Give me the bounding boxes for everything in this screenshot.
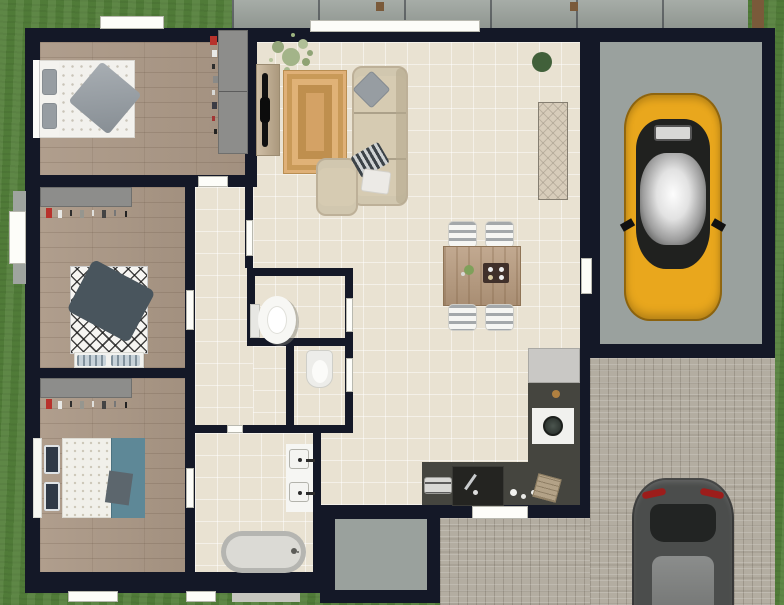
bidet-bowl bbox=[312, 360, 328, 383]
car-sunroof bbox=[654, 125, 692, 141]
car-roof bbox=[640, 153, 706, 245]
dining-chair[interactable] bbox=[485, 221, 514, 248]
vanity[interactable] bbox=[286, 444, 313, 512]
toilet-seat bbox=[267, 306, 287, 334]
car-rear-window bbox=[650, 504, 716, 542]
yellow-car[interactable] bbox=[624, 93, 722, 321]
bidet[interactable] bbox=[306, 350, 333, 388]
window-bedroom2-left[interactable] bbox=[9, 211, 26, 264]
pillow bbox=[44, 482, 60, 511]
fence-post bbox=[376, 2, 384, 11]
wardrobe[interactable] bbox=[40, 378, 132, 398]
wall-bathroom-top-b bbox=[243, 425, 352, 433]
window-bathroom-bottom[interactable] bbox=[232, 593, 300, 602]
door-wc-room[interactable] bbox=[346, 358, 353, 392]
wardrobe[interactable] bbox=[40, 187, 132, 207]
door-bedroom2[interactable] bbox=[186, 290, 194, 330]
table-plant bbox=[464, 265, 474, 275]
dark-car[interactable] bbox=[632, 478, 734, 605]
dishes bbox=[510, 489, 517, 496]
window-bedroom1-top[interactable] bbox=[100, 16, 164, 29]
hallway-floor-lower bbox=[253, 346, 286, 425]
wall-hall-left bbox=[185, 187, 195, 577]
sofa-chaise[interactable] bbox=[316, 158, 358, 216]
sideboard[interactable] bbox=[538, 102, 568, 200]
headboard bbox=[33, 60, 40, 138]
bed[interactable] bbox=[33, 438, 145, 518]
vanity-sink bbox=[289, 482, 309, 502]
dining-chair[interactable] bbox=[485, 304, 514, 331]
door-bedroom1[interactable] bbox=[198, 176, 228, 187]
window-ledge bbox=[13, 264, 26, 284]
fence-post bbox=[570, 2, 578, 11]
car-roof bbox=[652, 556, 714, 605]
hanging-clothes bbox=[210, 36, 217, 45]
wardrobe[interactable] bbox=[218, 30, 248, 154]
door-toilet-room[interactable] bbox=[346, 298, 353, 332]
headboard bbox=[33, 438, 42, 518]
dining-table[interactable] bbox=[443, 246, 521, 306]
bathtub-basin bbox=[226, 536, 301, 568]
wall-wc-top bbox=[247, 268, 353, 276]
stove[interactable] bbox=[532, 408, 574, 444]
wall-bedroom2-3-divider bbox=[25, 368, 185, 378]
pillow bbox=[77, 355, 106, 366]
pillow bbox=[111, 355, 140, 366]
toilet[interactable] bbox=[250, 296, 298, 346]
kitchen-sink[interactable] bbox=[452, 466, 504, 506]
stove-burner bbox=[543, 416, 563, 436]
fruit bbox=[552, 390, 560, 398]
bed[interactable] bbox=[70, 266, 148, 368]
sink-drain bbox=[473, 490, 478, 495]
tv-console[interactable] bbox=[256, 64, 280, 156]
patio-pad bbox=[335, 519, 427, 590]
potted-plant-dark[interactable] bbox=[532, 52, 552, 72]
hanging-clothes bbox=[46, 399, 52, 409]
toaster[interactable] bbox=[424, 477, 452, 494]
door-bathroom[interactable] bbox=[227, 425, 243, 433]
tray-bowls bbox=[488, 267, 493, 272]
door-hall-living[interactable] bbox=[246, 220, 253, 256]
throw-square bbox=[105, 470, 133, 505]
wall-wc2-left bbox=[286, 346, 294, 433]
window-living-top[interactable] bbox=[310, 20, 480, 32]
window-ledge bbox=[13, 191, 26, 211]
pillow bbox=[44, 445, 60, 474]
driveway-extension bbox=[440, 518, 590, 605]
door-bedroom3[interactable] bbox=[186, 468, 194, 508]
window-bedroom3-bottom-2[interactable] bbox=[186, 591, 216, 602]
sofa-backrest bbox=[396, 68, 406, 204]
bed[interactable] bbox=[33, 60, 135, 138]
bathtub-faucet bbox=[291, 548, 297, 554]
wall-bathroom-right bbox=[313, 433, 321, 577]
pillow bbox=[42, 103, 57, 129]
potted-plant-light[interactable] bbox=[282, 48, 300, 66]
wall-bathroom-top-a bbox=[187, 425, 227, 433]
wall-wc-right bbox=[345, 268, 353, 433]
fence-post bbox=[752, 0, 764, 28]
floor-plan-canvas bbox=[0, 0, 784, 605]
sink-faucet bbox=[464, 474, 477, 490]
dining-chair[interactable] bbox=[448, 221, 477, 248]
vanity-sink bbox=[289, 449, 309, 469]
door-front[interactable] bbox=[472, 506, 528, 519]
bathtub[interactable] bbox=[221, 531, 306, 573]
window-bedroom3-bottom[interactable] bbox=[68, 591, 118, 602]
tv-center bbox=[260, 97, 270, 123]
door-garage[interactable] bbox=[581, 258, 592, 294]
fridge[interactable] bbox=[528, 348, 580, 383]
pillow bbox=[42, 69, 57, 95]
hanging-clothes bbox=[46, 208, 52, 218]
dining-chair[interactable] bbox=[448, 304, 477, 331]
serving-tray bbox=[483, 263, 509, 283]
pillow-white bbox=[361, 168, 392, 195]
